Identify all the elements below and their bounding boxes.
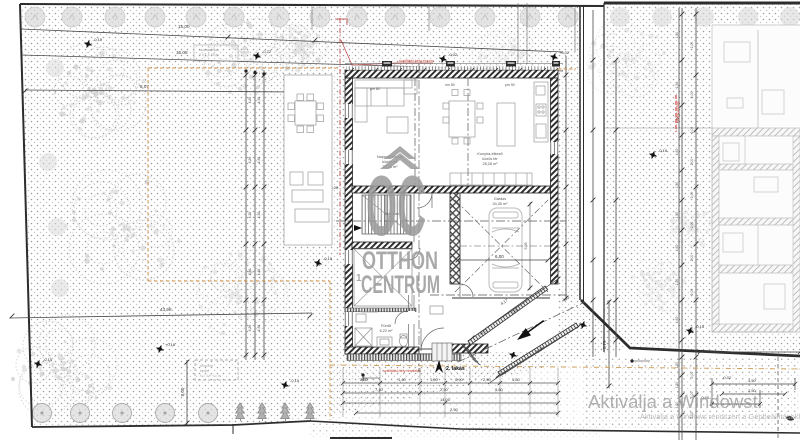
- svg-text:15,00: 15,00: [178, 24, 190, 29]
- svg-text:2,00: 2,00: [690, 127, 694, 134]
- svg-text:Fürdő: Fürdő: [381, 324, 391, 328]
- svg-text:1,50: 1,50: [675, 182, 679, 189]
- svg-text:szállítási hely xxxxxx: szállítási hely xxxxxx: [399, 59, 434, 63]
- svg-text:2,00: 2,00: [690, 222, 694, 229]
- svg-text:1,40: 1,40: [398, 377, 407, 382]
- svg-text:OC: OC: [366, 159, 426, 254]
- svg-text:1,50: 1,50: [675, 82, 679, 89]
- svg-text:V = 1 P + 1 m: V = 1 P + 1 m: [200, 374, 221, 378]
- svg-text:5,79: 5,79: [602, 340, 607, 349]
- svg-text:szomszédos: szomszédos: [199, 48, 219, 52]
- svg-text:4,36: 4,36: [257, 269, 261, 276]
- svg-text:Konyha-étkező: Konyha-étkező: [477, 152, 502, 156]
- svg-text:-0,15: -0,15: [658, 148, 668, 153]
- svg-text:2,50: 2,50: [360, 377, 369, 382]
- svg-text:2,00: 2,00: [690, 42, 694, 49]
- svg-text:7,40: 7,40: [375, 387, 384, 392]
- svg-text:2,50: 2,50: [483, 377, 492, 382]
- svg-text:-0,15: -0,15: [43, 357, 53, 362]
- svg-text:5,80: 5,80: [512, 377, 521, 382]
- svg-text:4,36: 4,36: [257, 212, 261, 219]
- svg-text:Aktiválja a Windowst: Aktiválja a Windowst: [588, 391, 758, 412]
- svg-text:14,00: 14,00: [440, 397, 451, 402]
- svg-text:pm 90: pm 90: [505, 83, 515, 87]
- svg-text:4,36: 4,36: [257, 325, 261, 332]
- svg-text:1,50: 1,50: [675, 317, 679, 324]
- svg-text:1,50: 1,50: [675, 245, 679, 252]
- svg-text:2,50: 2,50: [440, 387, 449, 392]
- svg-text:+0,16: +0,16: [165, 342, 176, 347]
- svg-text:1,50: 1,50: [675, 362, 679, 369]
- svg-text:4,36: 4,36: [248, 157, 252, 164]
- svg-text:4,36: 4,36: [248, 269, 252, 276]
- svg-text:34,35 m²: 34,35 m²: [493, 202, 509, 206]
- svg-text:épület: épület: [200, 369, 209, 373]
- svg-text:tervezett: tervezett: [200, 364, 213, 368]
- svg-text:1,50: 1,50: [675, 212, 679, 219]
- svg-text:2,00: 2,00: [690, 289, 694, 296]
- svg-text:6,22 m²: 6,22 m²: [380, 329, 394, 333]
- svg-text:6,00: 6,00: [495, 254, 504, 259]
- svg-text:5,80: 5,80: [495, 387, 504, 392]
- svg-text:1,50: 1,50: [430, 377, 439, 382]
- svg-text:-0,02: -0,02: [722, 375, 732, 380]
- svg-text:28,28 m²: 28,28 m²: [483, 162, 499, 166]
- svg-text:+0,02: +0,02: [559, 50, 570, 55]
- svg-text:Garázs: Garázs: [494, 197, 506, 201]
- svg-text:szállítási hely rendelés: szállítási hely rendelés: [383, 369, 421, 373]
- svg-text:1,50: 1,50: [675, 382, 679, 389]
- svg-text:5,05: 5,05: [524, 243, 528, 250]
- svg-text:8,00: 8,00: [180, 387, 185, 396]
- svg-text:2,00: 2,00: [690, 159, 694, 166]
- svg-text:CENTRUM: CENTRUM: [361, 271, 440, 299]
- svg-text:-0,72: -0,72: [262, 49, 272, 54]
- svg-text:nm 80: nm 80: [445, 83, 455, 87]
- svg-text:2,00: 2,00: [690, 255, 694, 262]
- svg-text:15,08: 15,08: [176, 50, 188, 55]
- svg-text:Aktiválja a Windows rendszert: Aktiválja a Windows rendszert a Gépbeáll…: [640, 412, 800, 421]
- svg-text:pm 80: pm 80: [370, 87, 380, 91]
- svg-text:1,50: 1,50: [675, 279, 679, 286]
- svg-text:1,50: 1,50: [675, 32, 679, 39]
- svg-text:2,50: 2,50: [450, 407, 459, 412]
- svg-text:villany oszlop: villany oszlop: [676, 101, 680, 122]
- svg-text:-0,15: -0,15: [695, 324, 705, 329]
- svg-text:4,36: 4,36: [248, 212, 252, 219]
- svg-text:közös tér: közös tér: [482, 157, 498, 161]
- svg-text:-0,15: -0,15: [323, 256, 333, 261]
- svg-text:2,00: 2,00: [690, 372, 694, 379]
- svg-text:4,50: 4,50: [748, 378, 757, 383]
- svg-text:-0,15: -0,15: [290, 378, 300, 383]
- svg-text:4,36: 4,36: [248, 97, 252, 104]
- svg-text:0,90: 0,90: [455, 377, 464, 382]
- svg-text:-0,02: -0,02: [448, 52, 458, 57]
- svg-text:2,00: 2,00: [690, 192, 694, 199]
- svg-text:2,00: 2,00: [690, 92, 694, 99]
- svg-text:4,36: 4,36: [248, 325, 252, 332]
- svg-text:2. lakás: 2. lakás: [446, 366, 465, 372]
- svg-text:-0,19: -0,19: [93, 37, 103, 42]
- svg-text:43,98: 43,98: [160, 307, 172, 312]
- svg-text:4,36: 4,36: [257, 157, 261, 164]
- svg-text:2 x 1 x 10 m: 2 x 1 x 10 m: [199, 53, 219, 57]
- svg-text:1,50: 1,50: [675, 149, 679, 156]
- svg-text:4,36: 4,36: [257, 97, 261, 104]
